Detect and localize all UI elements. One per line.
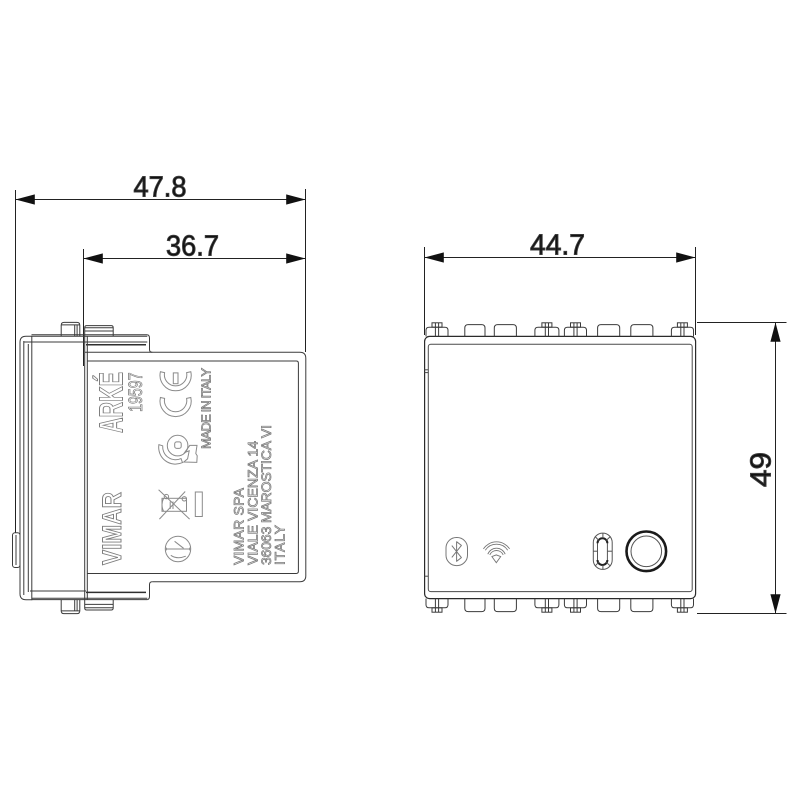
svg-text:VIMAR: VIMAR — [97, 492, 127, 565]
svg-text:47.8: 47.8 — [134, 172, 187, 204]
svg-text:ARKÉ: ARKÉ — [93, 372, 130, 433]
svg-text:ITALY: ITALY — [271, 524, 287, 565]
svg-text:44.7: 44.7 — [530, 230, 585, 262]
svg-text:19597: 19597 — [126, 373, 147, 412]
svg-text:36.7: 36.7 — [166, 231, 219, 263]
svg-text:49: 49 — [746, 452, 778, 487]
svg-text:MADE IN ITALY: MADE IN ITALY — [199, 368, 214, 449]
